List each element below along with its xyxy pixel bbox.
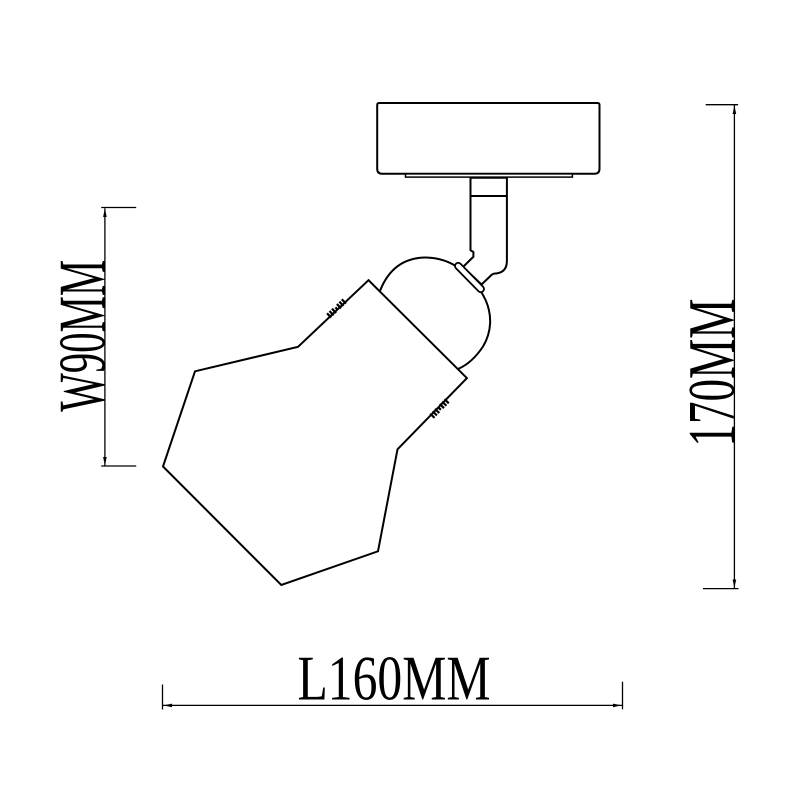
svg-text:L160MM: L160MM bbox=[298, 643, 491, 713]
svg-text:170MM: 170MM bbox=[675, 299, 749, 447]
svg-text:W90MM: W90MM bbox=[45, 260, 119, 412]
